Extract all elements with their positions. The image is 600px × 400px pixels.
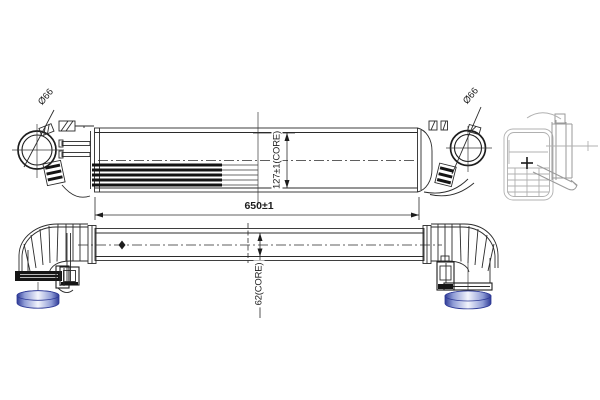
technical-drawing-canvas: Ø66 Ø66 127±1(CORE) 650±1 62(CORE) — [0, 0, 600, 400]
port-clamp — [39, 124, 54, 136]
dim-label-overall-length: 650±1 — [244, 200, 273, 212]
left-port — [12, 110, 90, 197]
top-bracket — [59, 121, 94, 131]
tank-clips — [429, 121, 448, 130]
right-elbow — [423, 224, 498, 309]
left-elbow — [15, 224, 96, 308]
sensor-connector — [43, 160, 65, 185]
side-view — [504, 113, 598, 200]
left-port-opening — [17, 291, 59, 309]
hose-clamp — [15, 266, 73, 293]
dim-label-core-height: 127±1(CORE) — [272, 130, 283, 190]
sensor-connector — [435, 163, 456, 187]
hose-curve — [62, 185, 90, 197]
side-port-cylinder — [527, 113, 598, 180]
core-body — [91, 128, 418, 192]
drawing-linework — [0, 0, 600, 400]
center-mark — [119, 241, 126, 250]
side-center-cross — [521, 157, 533, 169]
right-port-opening — [445, 291, 491, 309]
core-tubes — [92, 112, 258, 205]
right-port — [435, 107, 492, 187]
mounting-studs — [59, 140, 90, 158]
dim-label-core-depth: 62(CORE) — [254, 261, 265, 308]
